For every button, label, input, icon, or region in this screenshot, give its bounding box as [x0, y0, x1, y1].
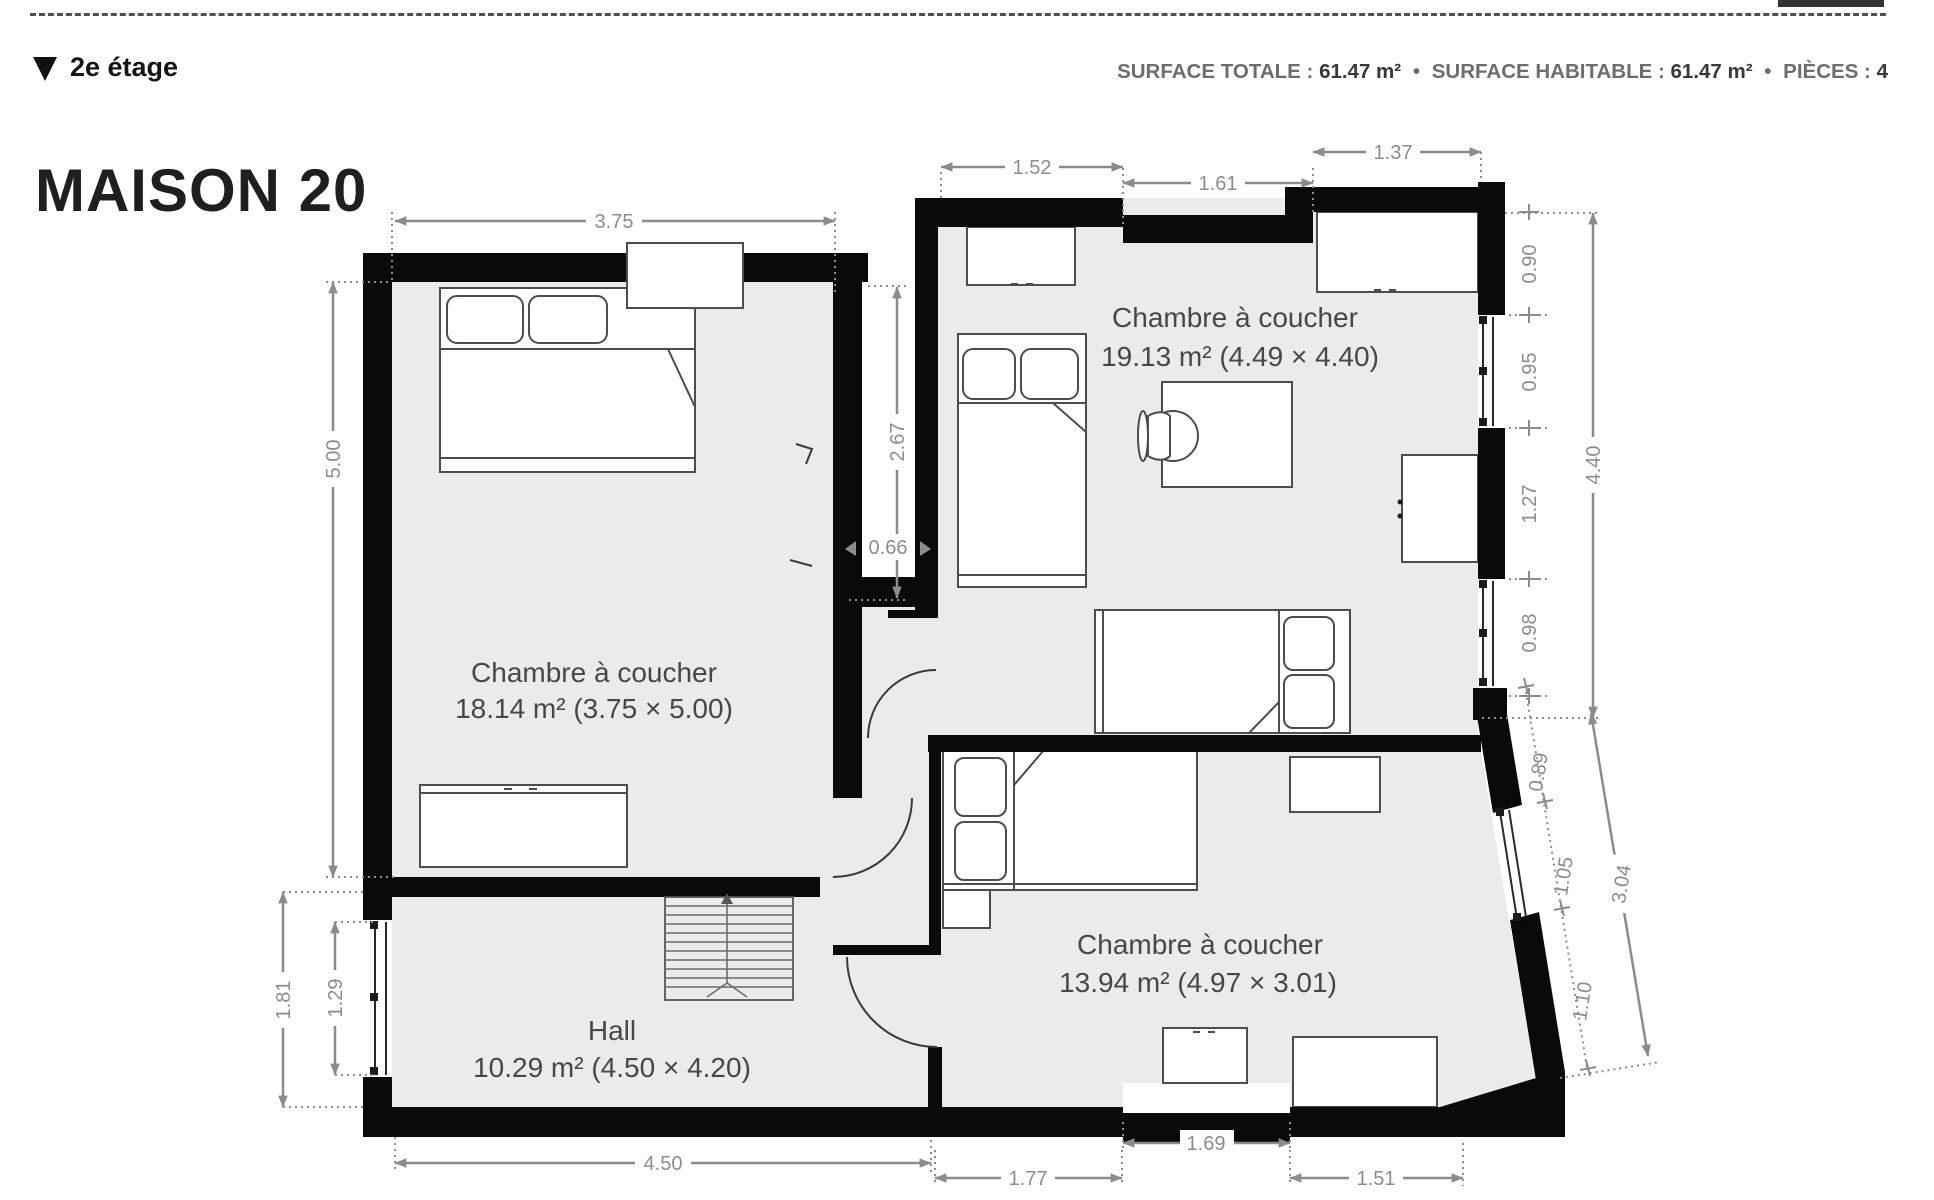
- dim-right-seg-2: 0.95: [1519, 353, 1541, 392]
- single-bed-vertical: [958, 334, 1086, 587]
- dim-left-room-height: 5.00: [323, 440, 345, 479]
- wall-top-seg3: [1313, 187, 1505, 212]
- wall-right-b: [1478, 428, 1505, 579]
- single-bed-horizontal: [1095, 610, 1350, 733]
- dim-left-room-width: 3.75: [595, 211, 634, 233]
- dim-left-bottom-total: 1.81: [273, 981, 295, 1020]
- window-right-upper: [1478, 315, 1505, 428]
- pillow: [955, 758, 1006, 816]
- bedroom-bottom-right-name: Chambre à coucher: [1077, 929, 1323, 960]
- dim-right-total: 4.40: [1583, 446, 1605, 485]
- wall-bottom-right: [1290, 1107, 1460, 1137]
- dresser-top-left: [967, 227, 1075, 285]
- bedroom-bottom-right-area: 13.94 m² (4.97 × 3.01): [1059, 967, 1337, 998]
- bedroom-left-area: 18.14 m² (3.75 × 5.00): [455, 693, 733, 724]
- pillow: [963, 349, 1015, 399]
- pillow: [1284, 617, 1334, 670]
- pillow: [529, 296, 607, 343]
- dim-bottom-seg-1: 1.77: [1009, 1168, 1048, 1190]
- dim-top-seg-3: 1.37: [1374, 142, 1413, 164]
- pillow: [1284, 675, 1334, 728]
- floor-nook-b: [820, 877, 833, 897]
- nightstand: [943, 890, 990, 928]
- dim-bottom-seg-2: 1.69: [1187, 1133, 1226, 1155]
- wall-door-header: [888, 610, 938, 618]
- dresser-left-room: [420, 785, 627, 867]
- wall-top-seg2: [1123, 215, 1313, 243]
- pillow: [447, 296, 523, 343]
- floor-plan-page: 2e étage MAISON 20 SURFACE TOTALE : 61.4…: [0, 0, 1934, 1200]
- single-bed-bottom: [943, 750, 1197, 890]
- wall-between-right-rooms: [928, 735, 1481, 752]
- wall-left-room-bottom: [363, 877, 820, 897]
- wall-left-exterior: [363, 282, 392, 920]
- wall-hall-room3-stub: [833, 945, 940, 955]
- wall-top-seg1: [915, 198, 1123, 227]
- staircase: [665, 893, 793, 1000]
- dim-top-seg-2: 1.61: [1199, 173, 1238, 195]
- dim-right-seg-1: 0.90: [1519, 245, 1541, 284]
- dim-slant-seg-2: 1.05: [1550, 855, 1578, 897]
- bottom-recess: [1123, 1083, 1290, 1113]
- wall-between-left-room-corridor: [833, 282, 862, 798]
- pillow: [1021, 349, 1078, 399]
- dresser-top-right: [1317, 212, 1478, 292]
- dim-slant-seg-1: 0.89: [1525, 751, 1553, 793]
- dresser-bottom-right: [1293, 1037, 1437, 1107]
- hall-name: Hall: [588, 1015, 636, 1046]
- window-left: [363, 920, 392, 1077]
- dim-bottom-seg-3: 1.51: [1357, 1168, 1396, 1190]
- dim-left-bottom-window: 1.29: [325, 979, 347, 1018]
- bedroom-top-right-name: Chambre à coucher: [1112, 302, 1358, 333]
- dim-corridor-height: 2.67: [887, 423, 909, 462]
- pillow: [955, 822, 1006, 880]
- hall-area: 10.29 m² (4.50 × 4.20): [473, 1052, 751, 1083]
- wall-corridor-stub: [862, 577, 917, 607]
- desk-chair: [1138, 411, 1198, 461]
- dim-top-seg-1: 1.52: [1013, 157, 1052, 179]
- window-right-lower: [1478, 579, 1505, 688]
- dim-bottom-hall: 4.50: [644, 1153, 683, 1175]
- small-table: [1290, 757, 1380, 812]
- bedroom-left-name: Chambre à coucher: [471, 657, 717, 688]
- wall-bottom-hall: [363, 1107, 1123, 1137]
- dresser-bottom-center: [1163, 1028, 1247, 1083]
- floor-nook-a: [833, 798, 862, 897]
- dim-right-seg-4: 0.98: [1519, 614, 1541, 653]
- dim-slant-seg-3: 1.10: [1569, 980, 1597, 1022]
- dim-passage-width: 0.66: [869, 537, 908, 559]
- dim-right-seg-3: 1.27: [1519, 485, 1541, 524]
- floor-plan-drawing: 3.75 1.52 1.61 1.37 5.00 2.67 0.66 4.40 …: [0, 0, 1934, 1200]
- wall-hall-right: [928, 1047, 942, 1107]
- wall-top-left-building: [363, 253, 868, 282]
- wall-right-building-left: [915, 198, 938, 618]
- double-bed: [440, 288, 695, 472]
- wall-right-a: [1478, 182, 1505, 315]
- dresser-right-wall: [1398, 455, 1479, 562]
- wall-niche: [627, 243, 743, 308]
- wall-room3-left: [929, 752, 941, 955]
- wall-top-step: [1285, 187, 1313, 243]
- bedroom-top-right-area: 19.13 m² (4.49 × 4.40): [1101, 341, 1379, 372]
